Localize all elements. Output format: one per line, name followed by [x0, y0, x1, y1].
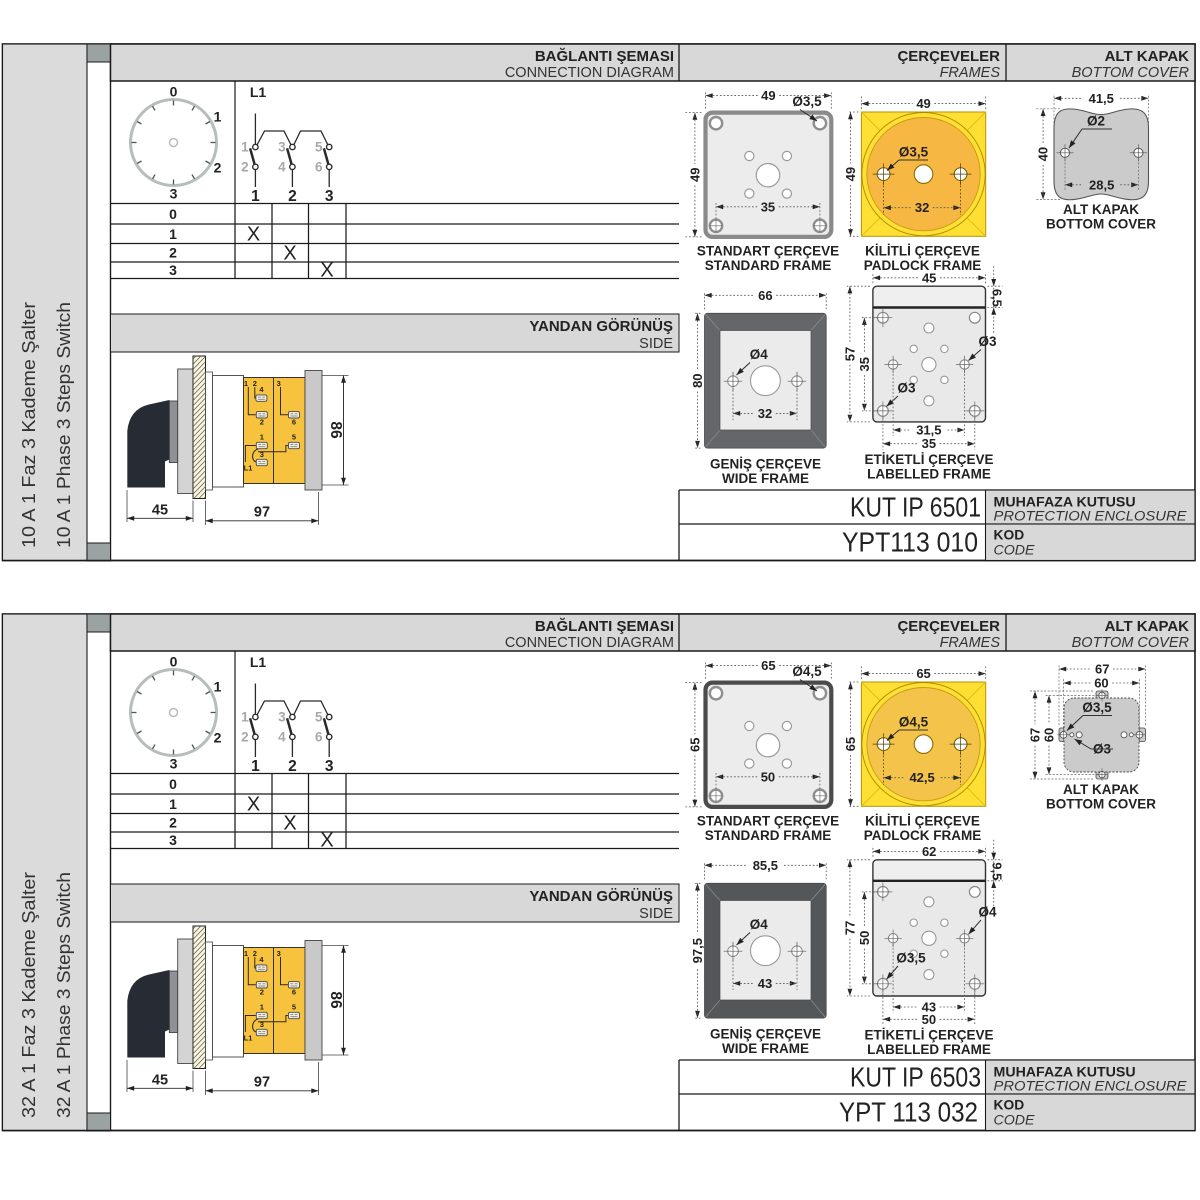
svg-text:50: 50	[857, 931, 872, 945]
svg-text:BAĞLANTI ŞEMASI: BAĞLANTI ŞEMASI	[535, 617, 674, 635]
svg-text:Ø4: Ø4	[750, 917, 769, 932]
svg-text:KİLİTLİ ÇERÇEVE: KİLİTLİ ÇERÇEVE	[865, 814, 980, 829]
svg-text:4: 4	[278, 159, 286, 174]
svg-text:WIDE FRAME: WIDE FRAME	[722, 1041, 809, 1056]
svg-text:6: 6	[292, 418, 296, 427]
svg-text:PROTECTION ENCLOSURE: PROTECTION ENCLOSURE	[994, 1079, 1188, 1095]
svg-text:2: 2	[241, 159, 249, 174]
svg-text:L1: L1	[244, 464, 253, 473]
svg-text:10 A 1 Faz 3 Kademe Şalter: 10 A 1 Faz 3 Kademe Şalter	[18, 302, 39, 548]
svg-text:0: 0	[170, 654, 178, 670]
svg-text:65: 65	[916, 666, 930, 681]
svg-text:57: 57	[842, 347, 857, 361]
svg-text:2: 2	[253, 949, 257, 958]
svg-text:40: 40	[1036, 147, 1051, 161]
svg-text:KİLİTLİ ÇERÇEVE: KİLİTLİ ÇERÇEVE	[865, 244, 980, 259]
svg-text:65: 65	[761, 658, 775, 673]
svg-text:5: 5	[315, 140, 323, 155]
svg-text:WIDE FRAME: WIDE FRAME	[722, 471, 809, 486]
svg-text:Ø3: Ø3	[897, 381, 916, 396]
svg-text:L1: L1	[244, 1034, 253, 1043]
svg-text:1: 1	[251, 758, 260, 775]
svg-text:32 A 1 Faz 3 Kademe Şalter: 32 A 1 Faz 3 Kademe Şalter	[18, 872, 39, 1118]
svg-text:6: 6	[315, 729, 323, 744]
svg-text:85,5: 85,5	[753, 858, 778, 873]
svg-text:45: 45	[152, 503, 168, 519]
svg-text:1: 1	[251, 188, 260, 205]
svg-text:2: 2	[288, 758, 297, 775]
svg-text:STANDART ÇERÇEVE: STANDART ÇERÇEVE	[697, 244, 839, 259]
svg-text:X: X	[320, 260, 333, 282]
svg-text:Ø4: Ø4	[750, 347, 769, 362]
svg-text:X: X	[283, 813, 296, 835]
svg-text:3: 3	[277, 949, 281, 958]
svg-text:67: 67	[1095, 661, 1109, 676]
svg-text:1: 1	[244, 949, 248, 958]
svg-text:ETİKETLİ ÇERÇEVE: ETİKETLİ ÇERÇEVE	[864, 452, 993, 467]
svg-text:5: 5	[292, 1003, 296, 1012]
svg-text:49: 49	[843, 167, 858, 181]
svg-text:1: 1	[244, 379, 248, 388]
svg-text:FRAMES: FRAMES	[940, 65, 1001, 81]
svg-text:Ø3,5: Ø3,5	[792, 94, 822, 109]
svg-text:45: 45	[922, 270, 936, 285]
svg-text:2: 2	[214, 160, 222, 176]
svg-text:L1: L1	[250, 84, 267, 100]
svg-text:STANDARD FRAME: STANDARD FRAME	[705, 828, 832, 843]
svg-text:ETİKETLİ ÇERÇEVE: ETİKETLİ ÇERÇEVE	[864, 1028, 993, 1043]
svg-text:3: 3	[278, 140, 286, 155]
svg-text:32: 32	[758, 406, 772, 421]
svg-text:3: 3	[170, 756, 178, 772]
svg-text:Ø4,5: Ø4,5	[899, 715, 929, 730]
svg-text:2: 2	[241, 729, 249, 744]
svg-text:86: 86	[327, 991, 344, 1009]
svg-text:65: 65	[687, 738, 702, 752]
svg-text:1: 1	[214, 109, 222, 125]
svg-text:45: 45	[152, 1073, 168, 1089]
svg-text:SIDE: SIDE	[639, 906, 673, 922]
svg-text:YPT 113 032: YPT 113 032	[839, 1097, 978, 1128]
svg-text:1: 1	[260, 433, 264, 442]
svg-text:2: 2	[260, 988, 264, 997]
svg-text:0: 0	[170, 84, 178, 100]
svg-text:3: 3	[260, 450, 264, 459]
svg-text:3: 3	[260, 1020, 264, 1029]
svg-text:6,5: 6,5	[989, 289, 1004, 307]
svg-text:Ø4: Ø4	[978, 904, 997, 919]
svg-text:2: 2	[169, 815, 177, 831]
svg-text:X: X	[283, 243, 296, 265]
svg-text:3: 3	[325, 758, 334, 775]
svg-text:65: 65	[843, 737, 858, 751]
svg-text:62: 62	[922, 844, 936, 859]
svg-text:35: 35	[857, 357, 872, 371]
svg-text:67: 67	[1028, 728, 1043, 742]
svg-text:1: 1	[214, 679, 222, 695]
svg-text:10 A 1 Phase 3 Steps Switch: 10 A 1 Phase 3 Steps Switch	[53, 302, 74, 548]
svg-text:9,5: 9,5	[989, 862, 1004, 880]
svg-text:2: 2	[169, 245, 177, 261]
svg-text:ÇERÇEVELER: ÇERÇEVELER	[897, 618, 1000, 635]
svg-text:86: 86	[327, 421, 344, 439]
svg-text:ALT KAPAK: ALT KAPAK	[1063, 202, 1139, 217]
svg-text:X: X	[247, 224, 260, 246]
svg-text:X: X	[320, 830, 333, 852]
svg-text:2: 2	[288, 188, 297, 205]
svg-text:49: 49	[687, 168, 702, 182]
svg-text:32 A 1 Phase 3 Steps Switch: 32 A 1 Phase 3 Steps Switch	[53, 872, 74, 1118]
svg-text:BOTTOM COVER: BOTTOM COVER	[1072, 635, 1190, 651]
svg-text:LABELLED FRAME: LABELLED FRAME	[867, 467, 991, 482]
svg-text:1: 1	[241, 710, 249, 725]
svg-text:GENİŞ ÇERÇEVE: GENİŞ ÇERÇEVE	[710, 457, 821, 472]
svg-text:41,5: 41,5	[1089, 91, 1114, 106]
svg-text:KUT IP 6503: KUT IP 6503	[850, 1062, 981, 1093]
svg-text:Ø3,5: Ø3,5	[896, 951, 926, 966]
svg-text:50: 50	[761, 769, 775, 784]
svg-text:CODE: CODE	[994, 1113, 1036, 1129]
svg-text:0: 0	[169, 776, 177, 792]
svg-text:35: 35	[922, 436, 936, 451]
svg-text:35: 35	[761, 199, 775, 214]
svg-text:3: 3	[278, 710, 286, 725]
svg-text:2: 2	[214, 730, 222, 746]
svg-text:97: 97	[254, 1075, 270, 1091]
svg-text:BAĞLANTI ŞEMASI: BAĞLANTI ŞEMASI	[535, 47, 674, 65]
svg-text:ÇERÇEVELER: ÇERÇEVELER	[897, 48, 1000, 65]
svg-text:50: 50	[922, 1012, 936, 1027]
svg-text:ALT KAPAK: ALT KAPAK	[1063, 782, 1139, 797]
svg-text:1: 1	[241, 140, 249, 155]
svg-text:YANDAN GÖRÜNÜŞ: YANDAN GÖRÜNÜŞ	[529, 888, 673, 905]
svg-text:ALT KAPAK: ALT KAPAK	[1105, 618, 1190, 635]
svg-text:2: 2	[260, 418, 264, 427]
svg-text:3: 3	[169, 832, 177, 848]
svg-text:3: 3	[169, 262, 177, 278]
svg-text:Ø4,5: Ø4,5	[792, 664, 822, 679]
svg-text:66: 66	[758, 288, 772, 303]
svg-text:60: 60	[1042, 728, 1057, 742]
svg-text:L1: L1	[250, 654, 267, 670]
svg-text:80: 80	[690, 373, 705, 387]
svg-text:77: 77	[842, 921, 857, 935]
svg-text:49: 49	[916, 96, 930, 111]
svg-text:1: 1	[169, 226, 177, 242]
svg-text:2: 2	[253, 379, 257, 388]
svg-text:6: 6	[292, 988, 296, 997]
svg-text:97,5: 97,5	[690, 938, 705, 963]
svg-text:1: 1	[169, 796, 177, 812]
svg-text:28,5: 28,5	[1089, 177, 1114, 192]
svg-text:Ø3: Ø3	[978, 334, 997, 349]
svg-text:CONNECTION DIAGRAM: CONNECTION DIAGRAM	[505, 635, 674, 651]
svg-text:42,5: 42,5	[909, 770, 934, 785]
svg-text:5: 5	[315, 710, 323, 725]
svg-text:43: 43	[758, 976, 772, 991]
svg-text:Ø2: Ø2	[1087, 114, 1105, 129]
svg-text:4: 4	[278, 729, 286, 744]
svg-text:KOD: KOD	[994, 528, 1025, 543]
svg-text:Ø3,5: Ø3,5	[1082, 700, 1112, 715]
svg-text:STANDART ÇERÇEVE: STANDART ÇERÇEVE	[697, 814, 839, 829]
svg-text:SIDE: SIDE	[639, 336, 673, 352]
svg-text:GENİŞ ÇERÇEVE: GENİŞ ÇERÇEVE	[710, 1027, 821, 1042]
svg-text:3: 3	[170, 186, 178, 202]
svg-text:0: 0	[169, 206, 177, 222]
svg-text:YANDAN GÖRÜNÜŞ: YANDAN GÖRÜNÜŞ	[529, 318, 673, 335]
svg-text:YPT113 010: YPT113 010	[842, 527, 978, 558]
svg-text:Ø3,5: Ø3,5	[899, 145, 929, 160]
svg-text:PROTECTION ENCLOSURE: PROTECTION ENCLOSURE	[994, 509, 1188, 525]
svg-text:BOTTOM COVER: BOTTOM COVER	[1046, 217, 1156, 232]
svg-text:X: X	[247, 794, 260, 816]
svg-text:KUT IP 6501: KUT IP 6501	[850, 492, 981, 523]
svg-text:97: 97	[254, 505, 270, 521]
svg-text:ALT KAPAK: ALT KAPAK	[1105, 48, 1190, 65]
svg-text:KOD: KOD	[994, 1098, 1025, 1113]
svg-text:CODE: CODE	[994, 543, 1036, 559]
svg-text:LABELLED FRAME: LABELLED FRAME	[867, 1042, 991, 1057]
svg-text:BOTTOM COVER: BOTTOM COVER	[1072, 65, 1190, 81]
svg-text:STANDARD FRAME: STANDARD FRAME	[705, 258, 832, 273]
svg-text:32: 32	[915, 200, 929, 215]
svg-text:6: 6	[315, 159, 323, 174]
svg-text:CONNECTION DIAGRAM: CONNECTION DIAGRAM	[505, 65, 674, 81]
svg-text:BOTTOM COVER: BOTTOM COVER	[1046, 797, 1156, 812]
svg-text:49: 49	[761, 88, 775, 103]
svg-text:5: 5	[292, 433, 296, 442]
svg-text:1: 1	[260, 1003, 264, 1012]
svg-text:3: 3	[277, 379, 281, 388]
svg-text:PADLOCK FRAME: PADLOCK FRAME	[864, 828, 982, 843]
svg-text:FRAMES: FRAMES	[940, 635, 1001, 651]
svg-text:3: 3	[325, 188, 334, 205]
svg-text:60: 60	[1094, 675, 1108, 690]
